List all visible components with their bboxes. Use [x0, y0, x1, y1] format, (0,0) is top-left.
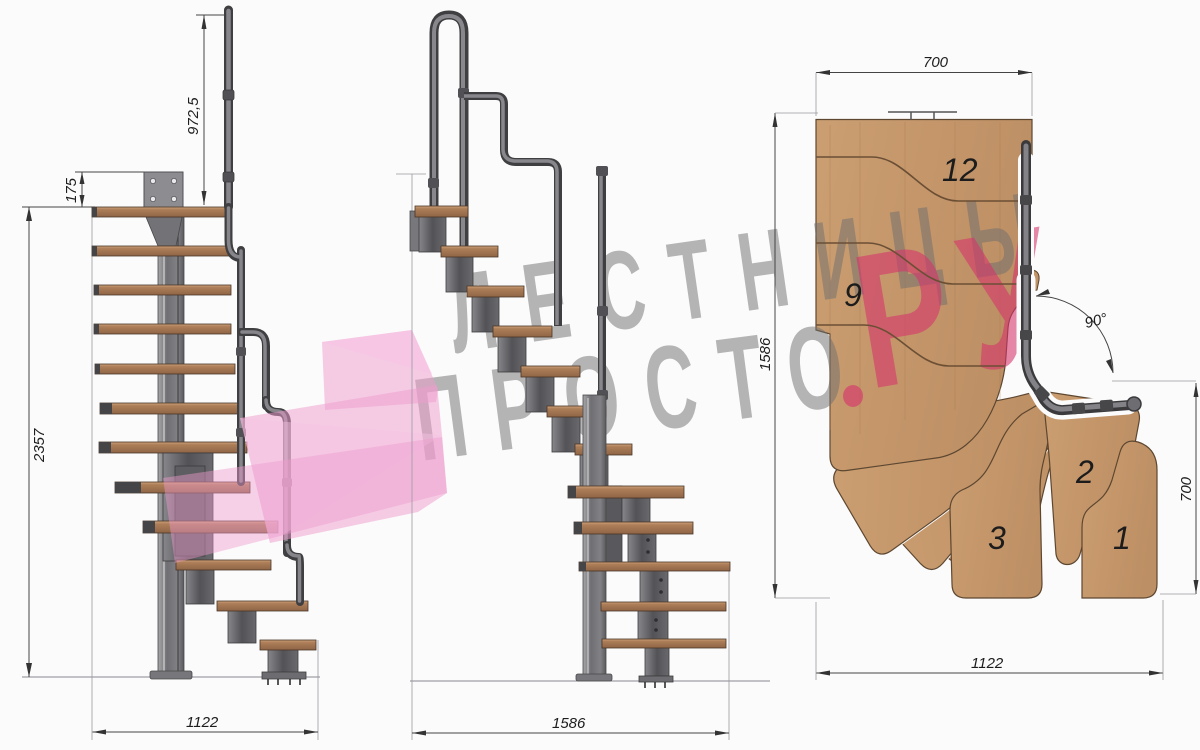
- svg-text:1586: 1586: [552, 715, 586, 732]
- svg-text:175: 175: [63, 177, 80, 203]
- svg-text:2: 2: [1075, 454, 1094, 490]
- svg-text:700: 700: [923, 54, 949, 71]
- svg-text:12: 12: [942, 152, 978, 188]
- svg-text:1586: 1586: [757, 337, 774, 371]
- svg-text:1122: 1122: [186, 714, 219, 731]
- svg-text:3: 3: [988, 520, 1006, 556]
- svg-text:700: 700: [1178, 476, 1195, 502]
- svg-text:1: 1: [1113, 520, 1131, 556]
- svg-text:1122: 1122: [971, 655, 1004, 672]
- svg-text:9: 9: [844, 277, 862, 313]
- svg-text:972,5: 972,5: [185, 97, 202, 135]
- svg-text:2357: 2357: [31, 428, 48, 463]
